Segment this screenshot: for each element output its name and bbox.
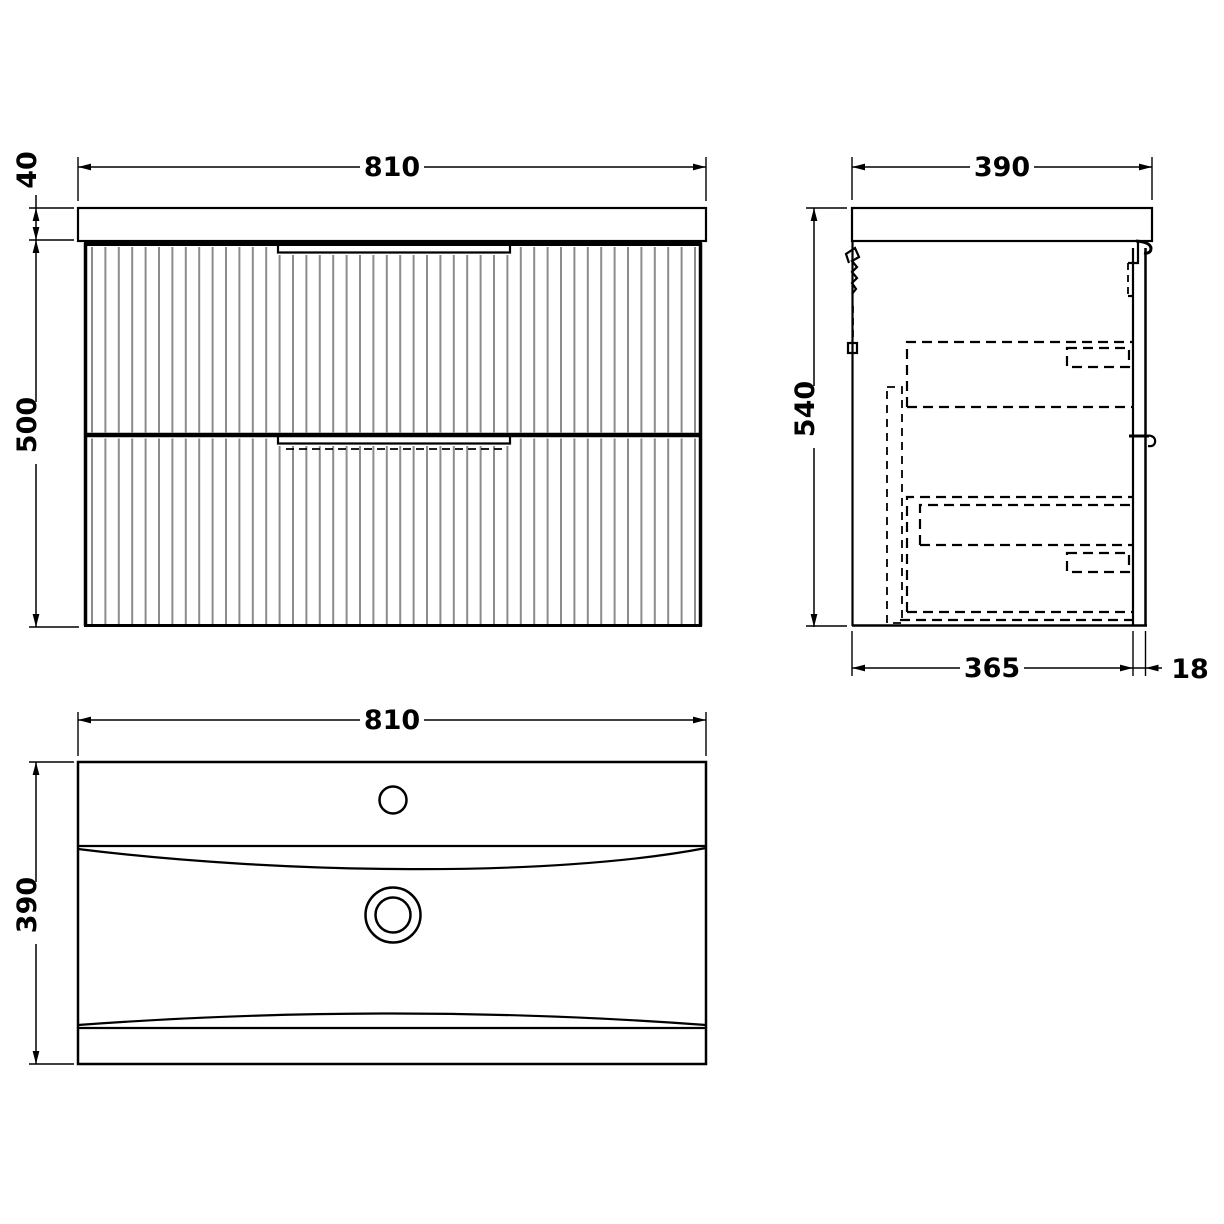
dimension-arrowhead bbox=[33, 762, 40, 775]
dimension-arrowhead bbox=[33, 227, 40, 240]
front-worktop-height-dimension: 40 bbox=[12, 151, 43, 189]
drawer2-handle-recess-hidden bbox=[1067, 553, 1129, 572]
side-worktop bbox=[852, 208, 1152, 241]
front-width-dimension: 810 bbox=[364, 152, 420, 183]
plan-depth-dimension: 390 bbox=[12, 877, 43, 933]
drawer2-box-inner-top bbox=[920, 505, 1133, 545]
plan-view: 810 390 bbox=[12, 705, 706, 1064]
side-overall-depth-dimension: 390 bbox=[974, 152, 1030, 183]
front-worktop bbox=[78, 208, 706, 241]
dimension-arrowhead bbox=[1139, 164, 1152, 171]
waste-drain-outer bbox=[366, 888, 421, 943]
dimension-arrowhead bbox=[852, 164, 865, 171]
vanity-technical-drawing: 810 40 500 bbox=[0, 0, 1224, 1224]
dimension-arrowhead bbox=[693, 717, 706, 724]
back-rail-hidden bbox=[887, 387, 902, 623]
dimension-arrows bbox=[33, 164, 706, 627]
side-view: 390 540 365 18 bbox=[790, 152, 1209, 685]
drawer2-box-outline bbox=[907, 497, 1133, 612]
dimension-arrowhead bbox=[1146, 665, 1159, 672]
dimension-arrowhead bbox=[1120, 665, 1133, 672]
drawer2-box-hidden bbox=[900, 497, 1133, 620]
dimension-arrowhead bbox=[78, 717, 91, 724]
dimension-arrowhead bbox=[78, 164, 91, 171]
technical-drawing-page: 810 40 500 bbox=[0, 0, 1224, 1224]
dimension-arrowhead bbox=[33, 614, 40, 627]
drawer1-box-hidden bbox=[907, 342, 1133, 407]
side-overall-height-dimension: 540 bbox=[790, 381, 821, 437]
front-drawer1-handle-recess bbox=[278, 246, 510, 253]
dimension-arrows bbox=[33, 717, 706, 1064]
basin-front-slope-curve bbox=[78, 1014, 706, 1026]
dimension-arrows bbox=[811, 164, 1159, 672]
plan-dimensions: 810 390 bbox=[12, 705, 706, 1064]
side-drawer2-handle-lip-curl bbox=[1148, 436, 1155, 447]
dimension-arrowhead bbox=[33, 1051, 40, 1064]
dimension-arrowhead bbox=[811, 208, 818, 221]
plan-width-dimension: 810 bbox=[364, 705, 420, 736]
dimension-arrowhead bbox=[852, 665, 865, 672]
side-body-depth-dimension: 365 bbox=[964, 653, 1020, 684]
front-view: 810 40 500 bbox=[12, 151, 706, 627]
waste-drain-inner bbox=[376, 898, 411, 933]
dimension-arrowhead bbox=[693, 164, 706, 171]
front-body-height-dimension: 500 bbox=[12, 397, 43, 453]
side-front-panel-dimension: 18 bbox=[1171, 654, 1209, 685]
drawer1-handle-recess-hidden bbox=[1067, 348, 1129, 367]
drawer1-box-outline bbox=[907, 342, 1133, 407]
dimension-arrowhead bbox=[33, 208, 40, 221]
tap-hole bbox=[380, 787, 407, 814]
basin-back-slope-curve bbox=[78, 848, 706, 869]
dimension-arrowhead bbox=[811, 614, 818, 627]
dimension-arrowhead bbox=[33, 240, 40, 253]
front-drawer2-handle-recess bbox=[278, 437, 510, 444]
